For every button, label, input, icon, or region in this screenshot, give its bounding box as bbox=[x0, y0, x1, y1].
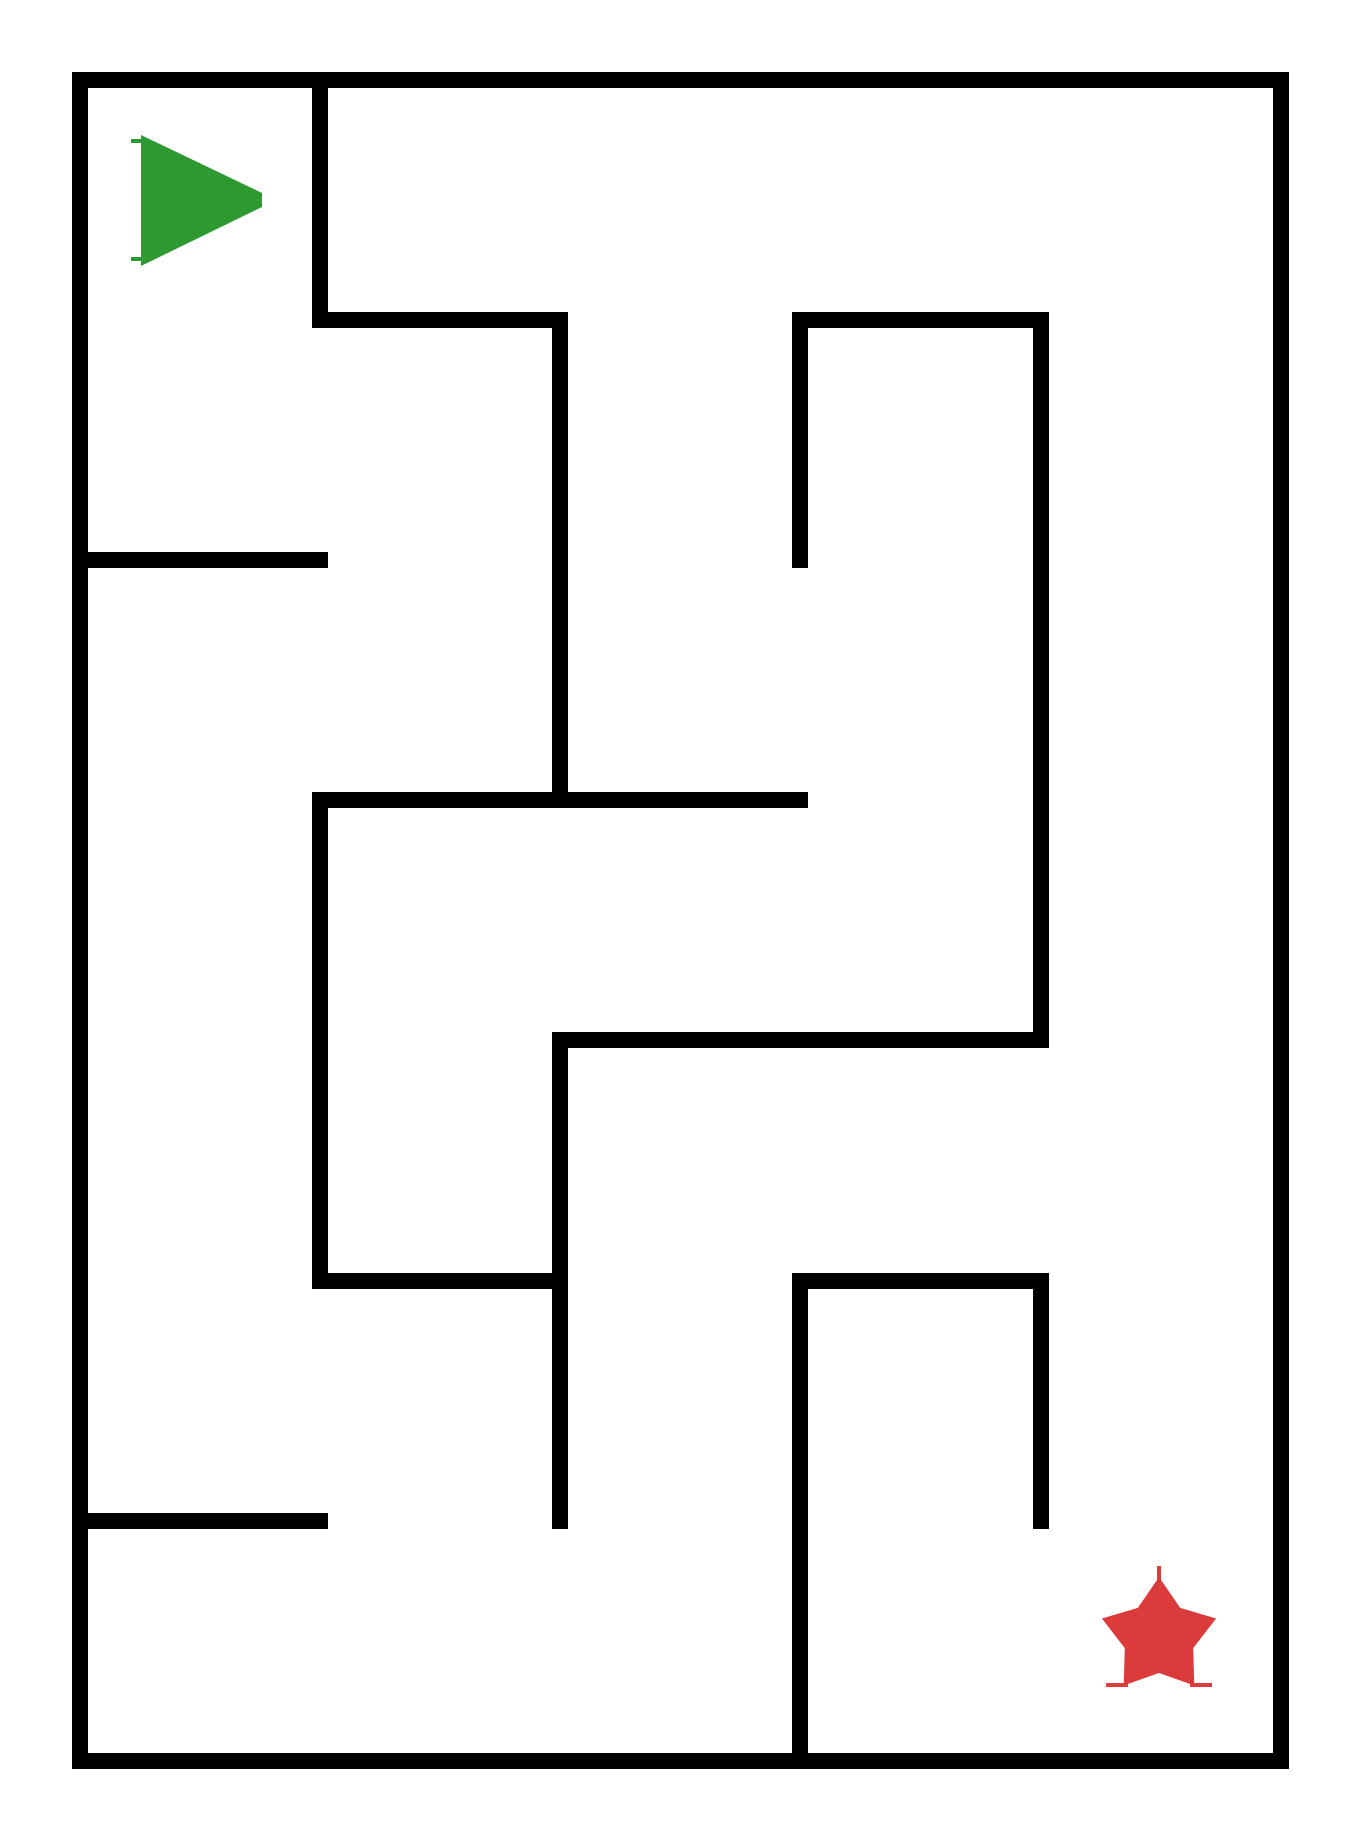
maze-canvas bbox=[0, 0, 1360, 1840]
goal-star-icon bbox=[1102, 1566, 1216, 1687]
goal-star-shape bbox=[1102, 1577, 1216, 1686]
start-triangle-shape bbox=[141, 135, 262, 266]
marker-serif-tick bbox=[131, 139, 142, 143]
marker-serif-tick bbox=[1106, 1683, 1128, 1687]
marker-serif-tick bbox=[131, 257, 142, 261]
marker-serif-tick bbox=[1190, 1683, 1212, 1687]
marker-overlay bbox=[0, 0, 1360, 1840]
marker-serif-tick bbox=[1157, 1566, 1161, 1580]
start-triangle-icon bbox=[131, 135, 262, 266]
